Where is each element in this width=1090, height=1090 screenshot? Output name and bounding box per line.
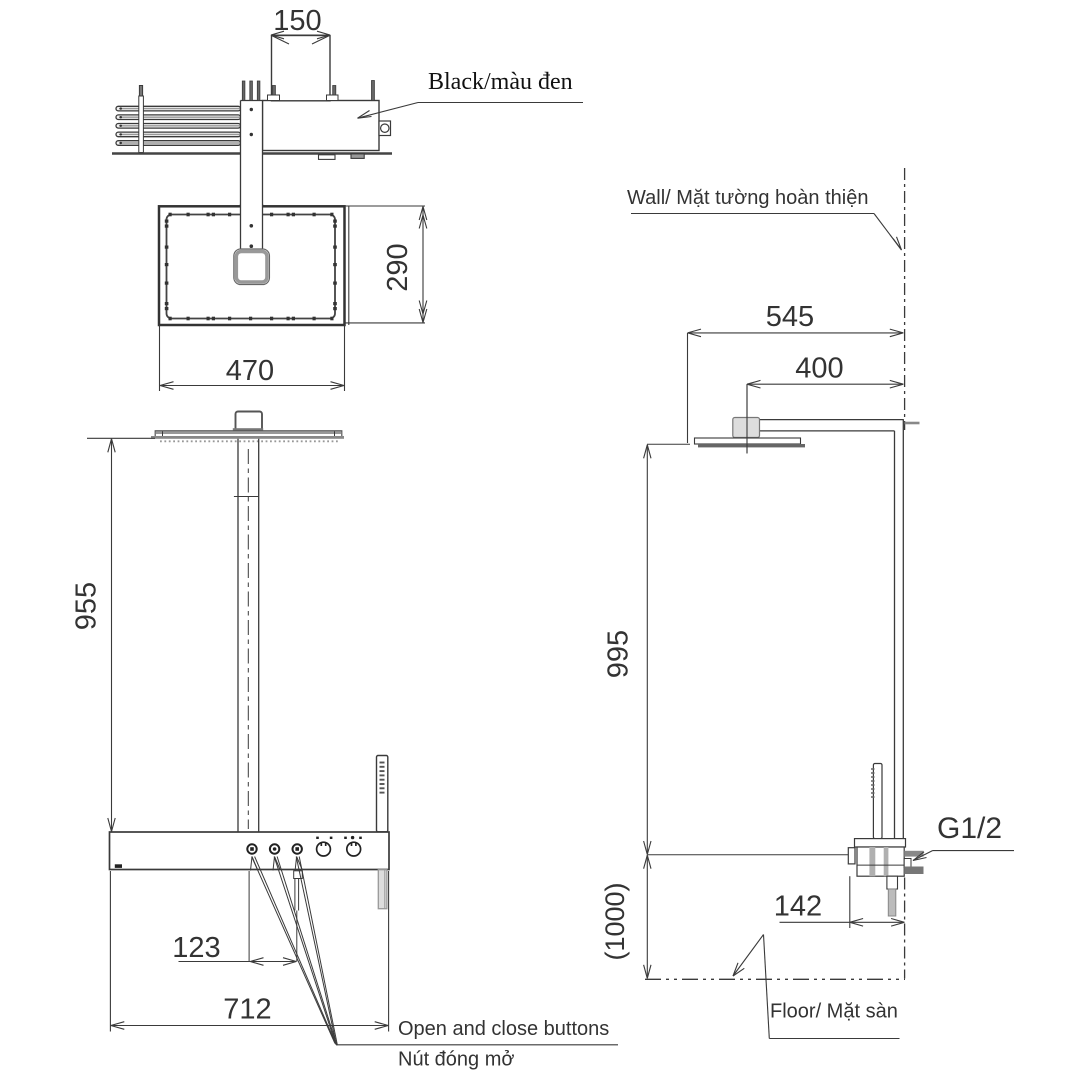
svg-text:150: 150 bbox=[273, 5, 321, 37]
svg-text:400: 400 bbox=[795, 353, 843, 385]
svg-text:995: 995 bbox=[603, 630, 635, 678]
svg-text:Floor/ Mặt sàn: Floor/ Mặt sàn bbox=[770, 1001, 898, 1023]
svg-text:955: 955 bbox=[71, 582, 103, 630]
svg-text:712: 712 bbox=[223, 994, 271, 1026]
svg-text:Open and close buttons: Open and close buttons bbox=[398, 1018, 609, 1040]
svg-text:Wall/ Mặt tường hoàn thiện: Wall/ Mặt tường hoàn thiện bbox=[627, 187, 868, 209]
svg-text:(1000): (1000) bbox=[600, 882, 630, 960]
svg-text:Nút đóng mở: Nút đóng mở bbox=[398, 1049, 515, 1071]
svg-text:142: 142 bbox=[774, 891, 822, 923]
svg-text:123: 123 bbox=[172, 932, 220, 964]
svg-text:470: 470 bbox=[226, 355, 274, 387]
svg-text:545: 545 bbox=[766, 301, 814, 333]
svg-text:290: 290 bbox=[382, 243, 414, 291]
svg-text:Black/màu đen: Black/màu đen bbox=[428, 69, 573, 95]
svg-text:G1/2: G1/2 bbox=[937, 812, 1002, 845]
